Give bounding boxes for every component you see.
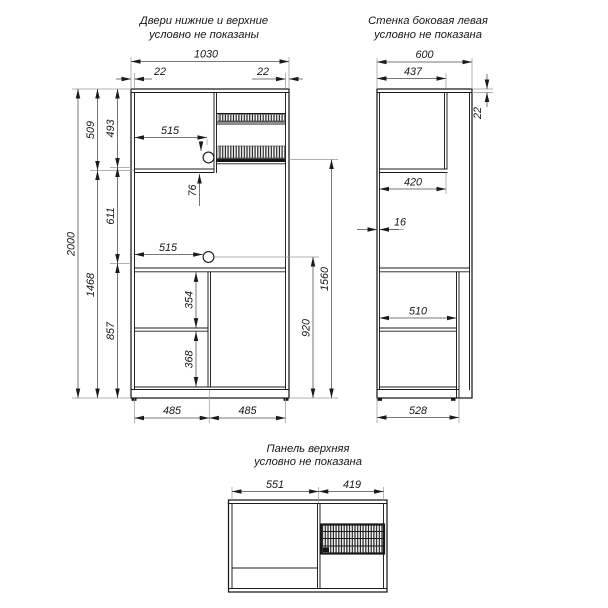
front-view bbox=[131, 89, 289, 401]
dim-side-420: 420 bbox=[404, 177, 422, 189]
dim-front-509: 509 bbox=[85, 121, 97, 139]
top-view bbox=[229, 500, 388, 592]
dim-front-857: 857 bbox=[105, 321, 117, 340]
dim-front-368: 368 bbox=[184, 350, 196, 368]
note-top-line2: условно не показана bbox=[253, 456, 362, 468]
note-front-line2: условно не показаны bbox=[148, 29, 260, 41]
dish-rack-top bbox=[321, 525, 384, 554]
dim-front-515-mid: 515 bbox=[159, 242, 178, 254]
top-view-note: Панель верхняя условно не показана bbox=[253, 443, 362, 468]
dish-rack-front bbox=[217, 114, 286, 164]
foot-right bbox=[284, 398, 289, 401]
cabinet-technical-drawing: Двери нижние и верхние условно не показа… bbox=[0, 0, 608, 608]
dim-front-2000: 2000 bbox=[66, 232, 78, 257]
front-view-note: Двери нижние и верхние условно не показа… bbox=[138, 15, 268, 41]
dim-side-437: 437 bbox=[404, 66, 423, 78]
foot-left bbox=[132, 398, 137, 401]
dim-front-485-right: 485 bbox=[238, 405, 257, 417]
hole-upper bbox=[203, 152, 214, 163]
dim-side-510: 510 bbox=[409, 306, 427, 318]
dim-front-1030: 1030 bbox=[194, 49, 218, 61]
dim-top-419: 419 bbox=[343, 479, 361, 491]
dim-front-1468: 1468 bbox=[85, 273, 97, 297]
dim-side-16: 16 bbox=[394, 217, 406, 229]
dim-front-515-top: 515 bbox=[161, 125, 180, 137]
drawing-sheet: Двери нижние и верхние условно не показа… bbox=[0, 0, 608, 608]
note-top-line1: Панель верхняя bbox=[266, 443, 349, 455]
dim-front-354: 354 bbox=[184, 291, 196, 309]
side-view-note: Стенка боковая левая условно не показана bbox=[368, 15, 488, 41]
dim-side-528: 528 bbox=[409, 405, 427, 417]
dim-front-1560: 1560 bbox=[319, 267, 331, 291]
dim-front-76: 76 bbox=[187, 184, 199, 196]
dim-front-493: 493 bbox=[105, 119, 117, 137]
dim-front-611: 611 bbox=[105, 207, 117, 224]
side-view bbox=[377, 89, 472, 401]
foot-side-right bbox=[451, 398, 456, 401]
foot-side-left bbox=[378, 398, 383, 401]
note-side-line1: Стенка боковая левая bbox=[368, 15, 488, 27]
note-side-line2: условно не показана bbox=[373, 29, 482, 41]
front-view-dimensions: 1030 22 22 2000 509 1468 493 611 857 515… bbox=[66, 49, 339, 424]
dim-side-22: 22 bbox=[472, 107, 484, 120]
dim-side-600: 600 bbox=[415, 49, 433, 61]
note-front-line1: Двери нижние и верхние bbox=[138, 15, 268, 27]
dim-front-22-left: 22 bbox=[153, 66, 166, 78]
hole-middle bbox=[203, 252, 214, 263]
dim-front-485-left: 485 bbox=[163, 405, 182, 417]
dim-top-551: 551 bbox=[266, 479, 284, 491]
dim-front-22-right: 22 bbox=[256, 66, 269, 78]
dim-front-920: 920 bbox=[301, 319, 313, 337]
